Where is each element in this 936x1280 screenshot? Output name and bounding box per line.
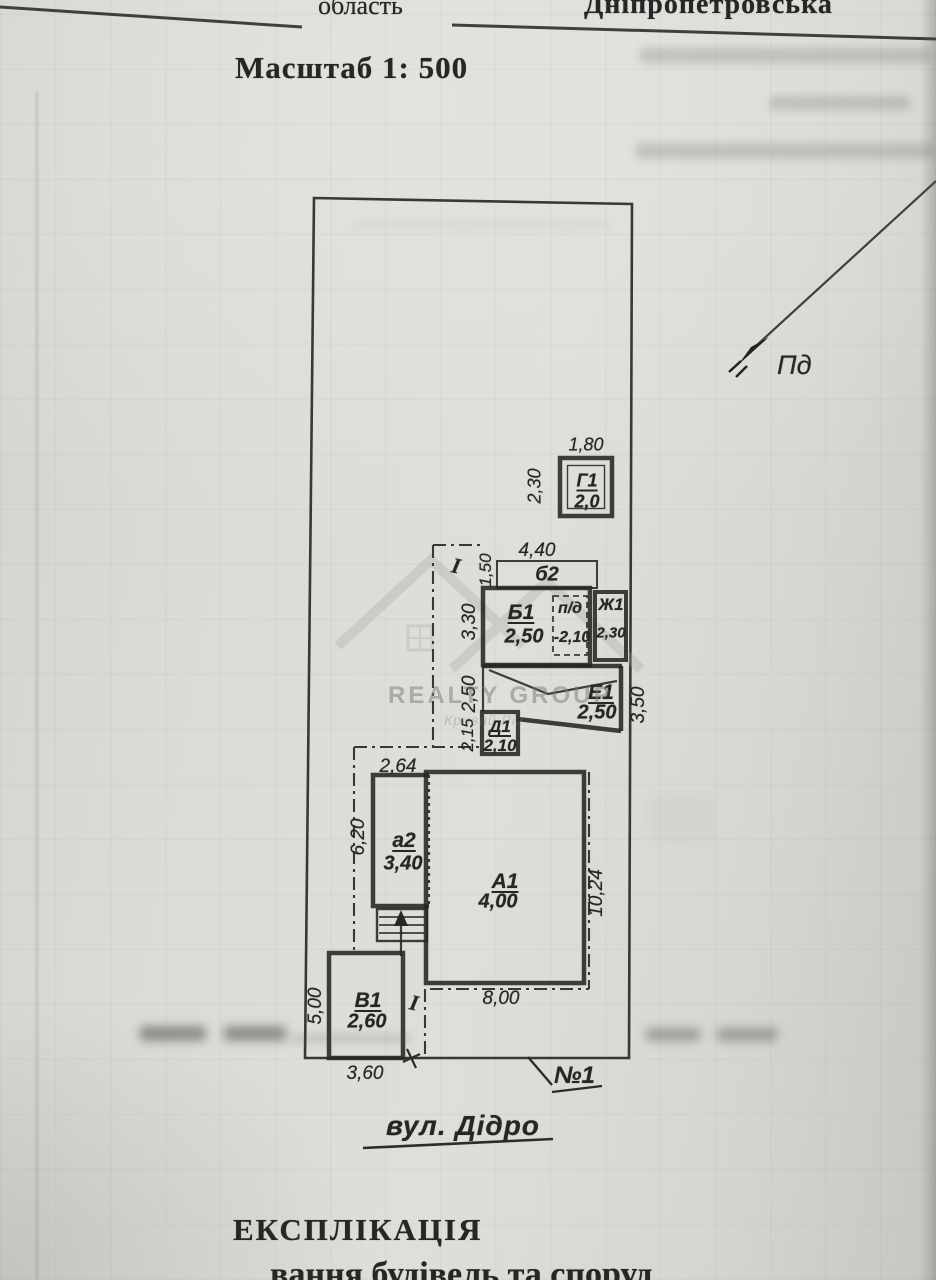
label-a2: а2: [392, 829, 415, 853]
compass-arrow-barbs: [729, 361, 747, 377]
dim-a1-right: 10,24: [586, 869, 608, 917]
dim-b2-height: 1,50: [476, 553, 496, 586]
header-rule-right: [452, 25, 936, 39]
value-a1: 4,00: [479, 891, 518, 914]
plot-number: №1: [554, 1062, 595, 1090]
dim-v1-width: 3,60: [347, 1063, 384, 1085]
scanned-technical-passport-page: область Дніпропетровська Масштаб 1: 500 …: [0, 0, 936, 1280]
value-g1: 2,0: [574, 492, 599, 513]
watermark-brand: REALTY GROUP: [388, 682, 578, 710]
bleedthrough-line: [636, 143, 934, 159]
value-a2: 3,40: [384, 853, 423, 876]
dim-b2-width: 4,40: [519, 540, 556, 562]
explication-title: ЕКСПЛІКАЦІЯ: [233, 1212, 482, 1248]
region-field-value: Дніпропетровська: [584, 0, 833, 21]
watermark-city: Кривий Ріг: [444, 712, 524, 728]
blurred-address-right: [646, 1028, 777, 1046]
dim-a2-left: 6,20: [348, 819, 370, 856]
scale-title: Масштаб 1: 500: [235, 50, 468, 86]
value-pd: -2,10: [554, 629, 590, 647]
value-b1: 2,50: [505, 626, 544, 649]
dim-a2-width: 2,64: [380, 756, 417, 778]
label-v1: В1: [355, 989, 382, 1013]
paper-edge-shadow: [920, 0, 936, 1280]
dim-a1-width: 8,00: [483, 988, 520, 1010]
stairs-direction-arrowhead: [394, 910, 408, 926]
plot-number-leader: [528, 1057, 552, 1085]
label-g1: Г1: [576, 471, 597, 492]
dim-g1-width: 1,80: [568, 435, 603, 456]
bleedthrough-line: [770, 96, 910, 110]
street-name: вул. Дідро: [386, 1110, 540, 1142]
label-zh1: Ж1: [598, 595, 623, 615]
dim-v1-left: 5,00: [305, 988, 327, 1025]
bleedthrough-mark: [648, 795, 714, 843]
dim-e1-right: 3,50: [628, 687, 650, 724]
paper-crease: [36, 92, 38, 1280]
value-d1: 2,10: [483, 736, 516, 756]
value-zh1: 2,30: [596, 625, 625, 642]
region-field-label: область: [318, 0, 403, 21]
dim-b1-left: 3,30: [459, 604, 481, 641]
bleedthrough-line: [640, 48, 930, 63]
header-rule-left: [0, 7, 302, 27]
bleedthrough-line: [352, 218, 614, 231]
compass-south-label: Пд: [777, 350, 812, 381]
label-b1: Б1: [508, 601, 535, 625]
compass-arrowhead: [738, 337, 769, 365]
dim-g1-height: 2,30: [525, 468, 546, 503]
explication-subtitle-fragment: вання будівель та споруд: [270, 1256, 652, 1280]
label-b2: б2: [535, 564, 559, 587]
compass-arrow-line: [757, 181, 936, 345]
label-pd: п/д: [558, 600, 582, 618]
blurred-address-left: [140, 1026, 411, 1046]
